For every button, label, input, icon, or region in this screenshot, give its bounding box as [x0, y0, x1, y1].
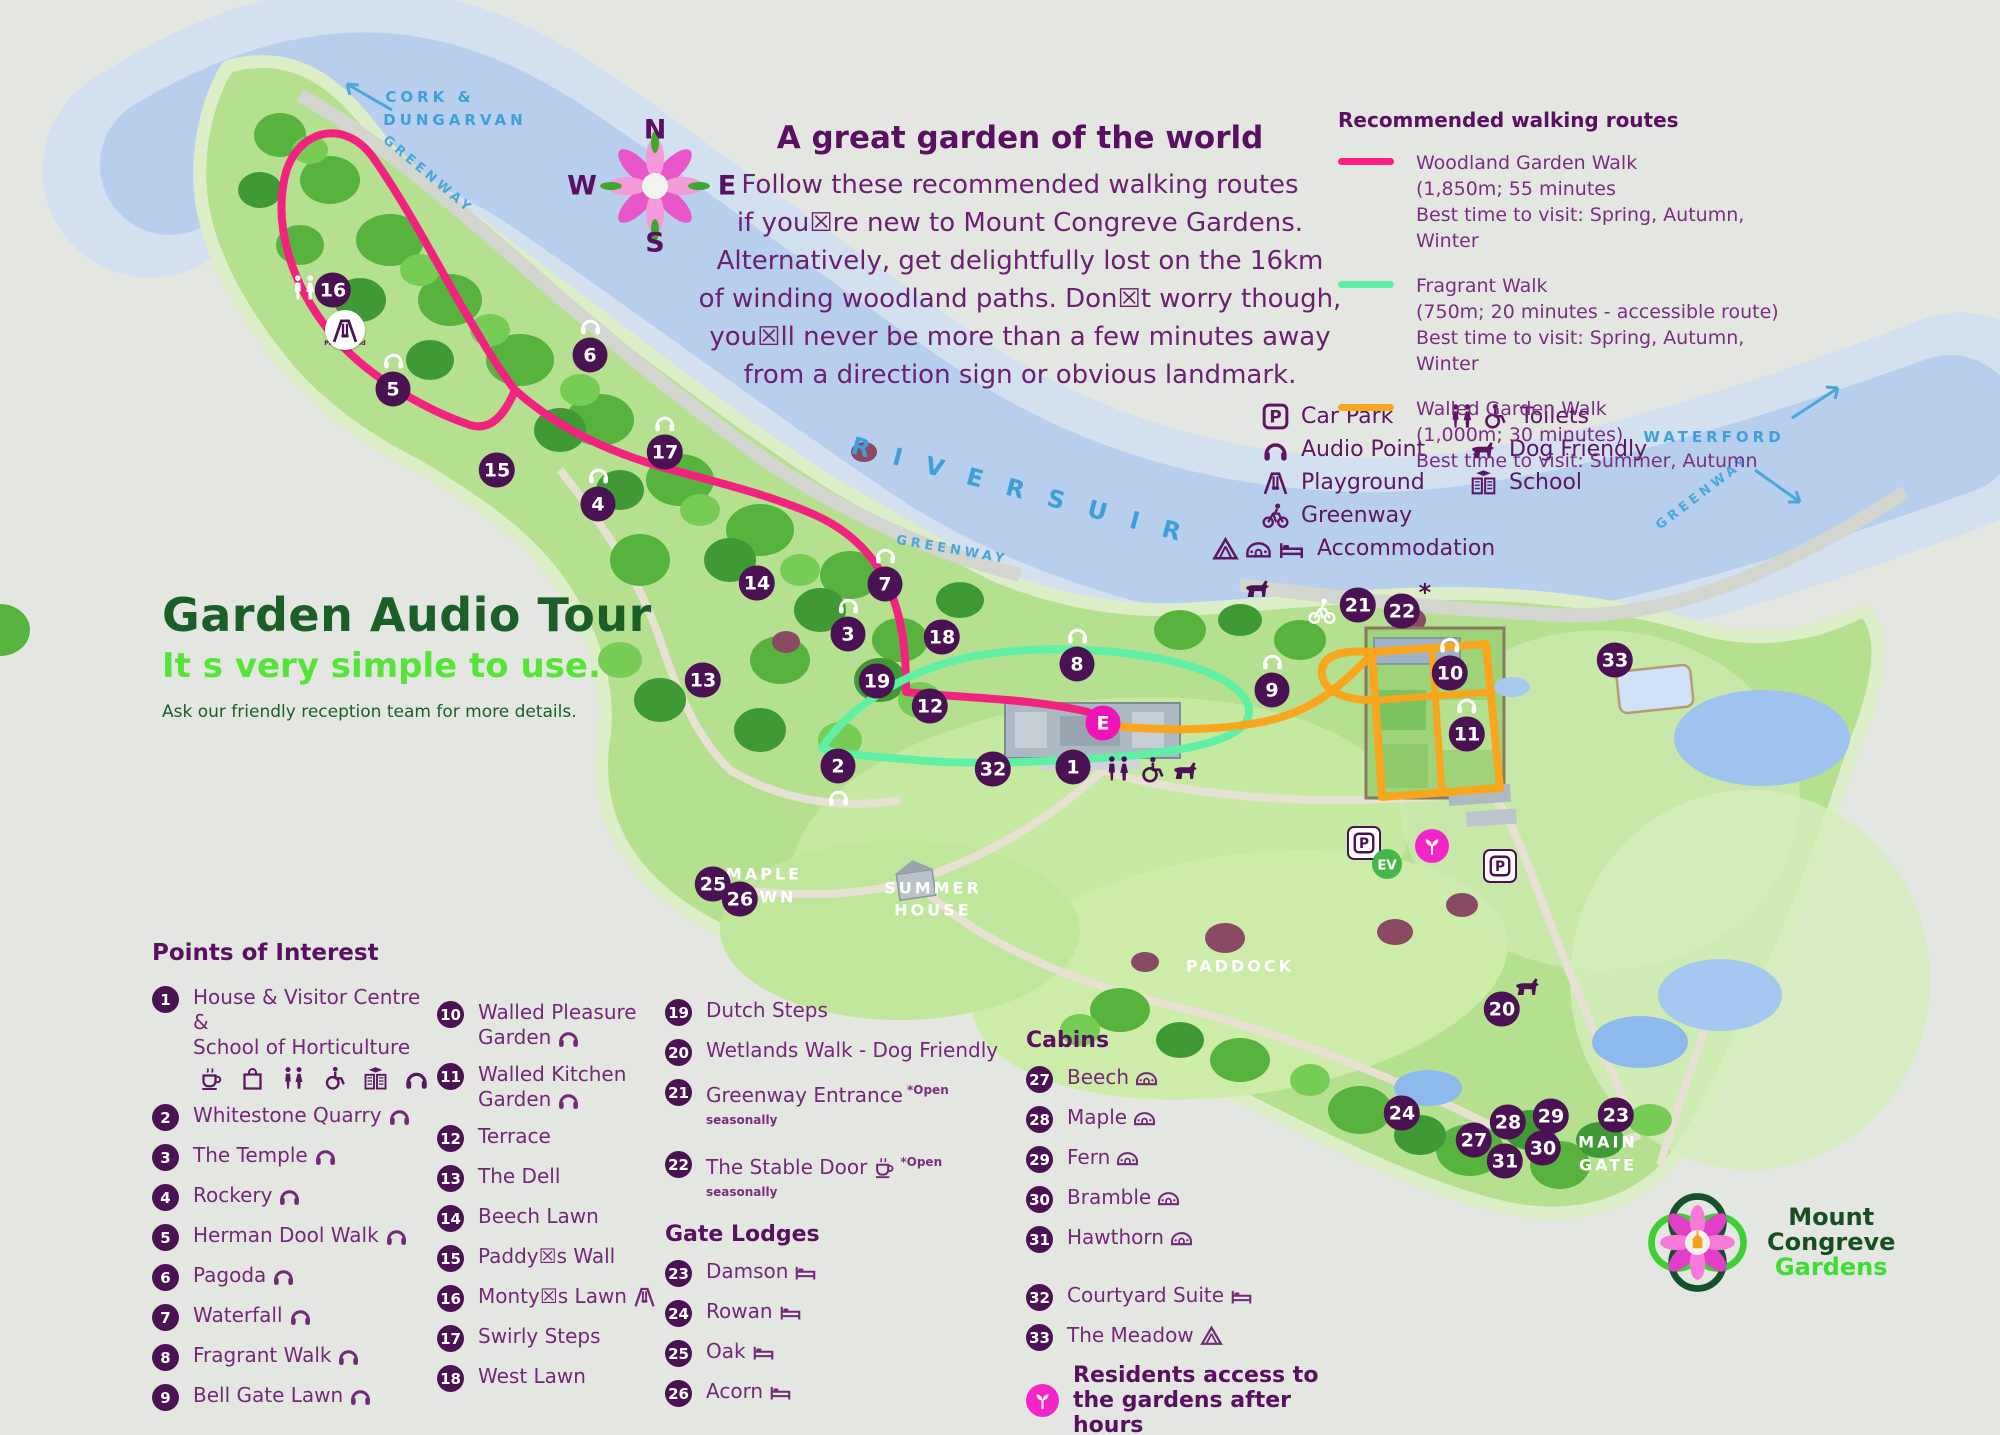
marker-number: 2 — [821, 749, 856, 784]
audio-point-icon — [349, 1384, 372, 1407]
marker-number: 12 — [912, 689, 948, 724]
pod-icon — [1135, 1066, 1158, 1089]
poi-item: 13 The Dell — [437, 1164, 662, 1192]
marker-number: 30 — [1525, 1131, 1561, 1166]
school-icon — [363, 1066, 388, 1091]
poi-number: 5 — [152, 1224, 179, 1251]
audio-point-icon — [1262, 436, 1289, 463]
audio-point-icon — [314, 1144, 337, 1167]
map-icon[interactable] — [1138, 756, 1166, 784]
poi-number: 12 — [437, 1125, 464, 1152]
map-marker[interactable]: 5 — [376, 348, 411, 407]
poi-number: 29 — [1026, 1146, 1053, 1173]
poi-number: 23 — [665, 1260, 692, 1287]
accommodation-item: 33 The Meadow — [1026, 1323, 1356, 1351]
gate-lodge-item: 24 Rowan — [665, 1299, 1015, 1327]
logo-line1: Mount — [1767, 1205, 1895, 1230]
seasonal-asterisk: * — [1419, 579, 1432, 607]
route-color-swatch — [1338, 281, 1394, 288]
route-item: Walled Garden Walk (1,000m; 30 minutes) … — [1338, 396, 1808, 474]
cabins-heading: Cabins — [1026, 1028, 1356, 1053]
map-label: CORK & — [385, 88, 474, 106]
route-detail: (1,850m; 55 minutes — [1416, 176, 1808, 202]
audio-point-icon — [1451, 693, 1483, 716]
map-icon[interactable] — [1104, 755, 1132, 783]
pod-icon — [1116, 1146, 1139, 1169]
wheelchair-icon — [322, 1066, 347, 1091]
map-marker[interactable]: 21 — [1340, 588, 1376, 623]
poi-number: 19 — [665, 999, 692, 1026]
marker-number: 28 — [1490, 1105, 1526, 1140]
cabins-block: Cabins 27 Beech 28 Maple 29 Fern — [1026, 1028, 1356, 1435]
route-name: Woodland Garden Walk — [1416, 150, 1808, 176]
audio-point-icon — [822, 785, 854, 808]
marker-number: 13 — [685, 663, 721, 698]
gate-lodge-item: 26 Acorn — [665, 1379, 1015, 1407]
marker-number: 33 — [1597, 643, 1633, 678]
poi-number: 3 — [152, 1144, 179, 1171]
poi-number: 27 — [1026, 1066, 1053, 1093]
poi-number: 15 — [437, 1245, 464, 1272]
audio-tour-note: Ask our friendly reception team for more… — [162, 702, 652, 722]
map-marker[interactable]: 33 — [1597, 643, 1633, 678]
audio-point-icon — [832, 593, 864, 616]
map-marker[interactable]: 1 — [1056, 750, 1091, 785]
map-label: MAIN — [1578, 1133, 1638, 1152]
coffee-icon — [873, 1156, 896, 1179]
pod-icon — [1245, 535, 1272, 562]
audio-point-icon — [1434, 632, 1466, 655]
audio-point-icon — [385, 1224, 408, 1247]
audio-point-icon — [557, 1088, 580, 1111]
audio-point-icon — [649, 411, 681, 434]
poi-item-1: 1 House & Visitor Centre & School of Hor… — [152, 985, 442, 1091]
bicycle-icon — [1262, 502, 1289, 529]
map-label: GATE — [1579, 1156, 1637, 1175]
audio-point-icon — [278, 1184, 301, 1207]
map-marker[interactable]: 19 — [859, 664, 895, 699]
marker-number: E — [1086, 706, 1121, 741]
audio-point-icon — [377, 348, 409, 371]
route-best-time: Best time to visit: Spring, Autumn, Wint… — [1416, 202, 1808, 254]
map-marker[interactable]: 23 — [1598, 1098, 1634, 1133]
poi-number: 7 — [152, 1304, 179, 1331]
intro-paragraph: Follow these recommended walking routes … — [690, 166, 1350, 394]
gate-lodge-item: 23 Damson — [665, 1259, 1015, 1287]
gate-lodge-item: 25 Oak — [665, 1339, 1015, 1367]
map-label: SUMMER — [884, 879, 982, 898]
marker-number: 32 — [975, 752, 1011, 787]
bed-icon — [1278, 535, 1305, 562]
map-icon[interactable] — [1483, 849, 1517, 883]
poi-number: 9 — [152, 1384, 179, 1411]
marker-number: 7 — [868, 567, 903, 602]
poi-item: 3 The Temple — [152, 1143, 442, 1171]
audio-point-icon — [337, 1344, 360, 1367]
map-label: HOUSE — [894, 901, 971, 920]
map-marker[interactable]: 16 — [315, 273, 351, 308]
audio-point-icon — [289, 1304, 312, 1327]
cabin-item: 27 Beech — [1026, 1065, 1356, 1093]
poi-number: 10 — [437, 1001, 464, 1028]
marker-number: 17 — [647, 435, 683, 470]
tent-icon — [1212, 535, 1239, 562]
logo-line3: Gardens — [1767, 1255, 1895, 1280]
map-marker[interactable]: 31 — [1487, 1144, 1523, 1179]
map-marker[interactable]: 6 — [573, 314, 608, 373]
map-marker[interactable]: 15 — [479, 453, 515, 488]
poi-item: 11 Walled Kitchen Garden — [437, 1062, 662, 1112]
poi-item: 9 Bell Gate Lawn — [152, 1383, 442, 1411]
poi1-facility-icons — [193, 1066, 442, 1091]
legend-accommodation: Accommodation — [1212, 535, 1495, 562]
route-item: Woodland Garden Walk (1,850m; 55 minutes… — [1338, 150, 1808, 254]
poi-item: 6 Pagoda — [152, 1263, 442, 1291]
map-marker[interactable]: 8 — [1060, 623, 1095, 682]
residents-access-icon — [1026, 1384, 1059, 1417]
map-marker[interactable]: 11 — [1449, 693, 1485, 752]
map-marker[interactable]: 2 — [821, 749, 856, 808]
map-icon[interactable] — [1308, 597, 1336, 625]
poi-number: 24 — [665, 1300, 692, 1327]
poi-item: 17 Swirly Steps — [437, 1324, 662, 1352]
map-marker[interactable]: E — [1086, 706, 1121, 741]
marker-number: 11 — [1449, 717, 1485, 752]
map-marker[interactable]: 7 — [868, 543, 903, 602]
map-marker[interactable]: 22 * — [1384, 594, 1420, 629]
poi-number: 18 — [437, 1365, 464, 1392]
audio-point-icon — [272, 1264, 295, 1287]
marker-number: 14 — [739, 566, 775, 601]
map-marker[interactable]: 29 — [1533, 1099, 1569, 1134]
poi-number: 13 — [437, 1165, 464, 1192]
marker-number: 10 — [1432, 656, 1468, 691]
poi-heading: Points of Interest — [152, 940, 379, 966]
map-icon[interactable] — [325, 310, 365, 350]
pod-icon — [1170, 1226, 1193, 1249]
marker-number: 8 — [1060, 647, 1095, 682]
poi-column-1: 1 House & Visitor Centre & School of Hor… — [152, 985, 442, 1423]
map-marker[interactable]: 18 — [924, 620, 960, 655]
marker-number: 1 — [1056, 750, 1091, 785]
audio-point-icon — [557, 1026, 580, 1049]
poi-number: 14 — [437, 1205, 464, 1232]
poi-number: 1 — [152, 986, 179, 1013]
audio-tour-subtitle: It s very simple to use. — [162, 646, 652, 686]
poi-item: 7 Waterfall — [152, 1303, 442, 1331]
gate-lodges-heading: Gate Lodges — [665, 1222, 1015, 1247]
marker-number: 5 — [376, 372, 411, 407]
pod-icon — [1157, 1186, 1180, 1209]
marker-number: 26 — [722, 882, 758, 917]
marker-number: 21 — [1340, 588, 1376, 623]
marker-number: 4 — [581, 487, 616, 522]
mount-congreve-logo: Mount Congreve Gardens — [1640, 1185, 1895, 1300]
marker-number: 22 — [1384, 594, 1420, 629]
map-marker[interactable]: 30 — [1525, 1131, 1561, 1166]
bed-icon — [752, 1340, 775, 1363]
cabin-item: 29 Fern — [1026, 1145, 1356, 1173]
cabin-item: 28 Maple — [1026, 1105, 1356, 1133]
poi-column-2: 10 Walled Pleasure Garden 11 Walled Kitc… — [437, 1000, 662, 1404]
map-marker[interactable]: 32 — [975, 752, 1011, 787]
route-detail: (750m; 20 minutes - accessible route) — [1416, 299, 1808, 325]
bed-icon — [769, 1380, 792, 1403]
poi-item: 16 Monty☒s Lawn — [437, 1284, 662, 1312]
poi-number: 11 — [437, 1063, 464, 1090]
map-marker[interactable]: 14 — [739, 566, 775, 601]
poi-number: 22 — [665, 1151, 692, 1178]
car-park-icon — [1262, 403, 1289, 430]
route-color-swatch — [1338, 158, 1394, 165]
bed-icon — [1230, 1284, 1253, 1307]
marker-number: 18 — [924, 620, 960, 655]
map-label: S — [645, 228, 664, 259]
tent-icon — [1200, 1324, 1223, 1347]
poi-number: 25 — [665, 1340, 692, 1367]
poi-item: 18 West Lawn — [437, 1364, 662, 1392]
logo-line2: Congreve — [1767, 1230, 1895, 1255]
poi-item: 14 Beech Lawn — [437, 1204, 662, 1232]
cabin-item: 30 Bramble — [1026, 1185, 1356, 1213]
route-name: Fragrant Walk — [1416, 273, 1808, 299]
map-marker[interactable]: 13 — [685, 663, 721, 698]
marker-number: 9 — [1255, 673, 1290, 708]
marker-number: 29 — [1533, 1099, 1569, 1134]
audio-tour-title: Garden Audio Tour — [162, 588, 652, 642]
audio-point-icon — [582, 463, 614, 486]
poi-item: 10 Walled Pleasure Garden — [437, 1000, 662, 1050]
poi-number: 20 — [665, 1039, 692, 1066]
map-label: DUNGARVAN — [383, 111, 526, 129]
intro-block: A great garden of the world Follow these… — [690, 120, 1350, 394]
logo-flower-icon — [1640, 1185, 1755, 1300]
poi-item: 2 Whitestone Quarry — [152, 1103, 442, 1131]
map-marker[interactable]: 20 — [1484, 992, 1520, 1027]
marker-number: 20 — [1484, 992, 1520, 1027]
coffee-icon — [199, 1066, 224, 1091]
residents-access-row: Residents access to the gardens after ho… — [1026, 1363, 1356, 1435]
intro-title: A great garden of the world — [690, 120, 1350, 156]
route-color-swatch — [1338, 404, 1394, 411]
audio-point-icon — [404, 1066, 429, 1091]
audio-point-icon — [1061, 623, 1093, 646]
poi-column-3: 19 Dutch Steps 20 Wetlands Walk - Dog Fr… — [665, 998, 1015, 1419]
marker-number: 19 — [859, 664, 895, 699]
map-marker[interactable]: 4 — [581, 463, 616, 522]
route-name: Walled Garden Walk — [1416, 396, 1758, 422]
marker-number: 16 — [315, 273, 351, 308]
poi-item: 20 Wetlands Walk - Dog Friendly — [665, 1038, 1015, 1066]
audio-tour-block: Garden Audio Tour It s very simple to us… — [162, 588, 652, 722]
map-marker[interactable]: 24 — [1384, 1096, 1420, 1131]
marker-number: 23 — [1598, 1098, 1634, 1133]
poi-item: 15 Paddy☒s Wall — [437, 1244, 662, 1272]
map-label: W — [567, 171, 597, 202]
marker-number: 15 — [479, 453, 515, 488]
playground-icon — [633, 1285, 656, 1308]
poi-number: 6 — [152, 1264, 179, 1291]
audio-point-icon — [869, 543, 901, 566]
marker-number: 24 — [1384, 1096, 1420, 1131]
poi-number: 32 — [1026, 1284, 1053, 1311]
map-icon[interactable] — [1372, 849, 1402, 879]
audio-point-icon — [574, 314, 606, 337]
map-marker[interactable]: 10 — [1432, 632, 1468, 691]
garden-map-page: P — [0, 0, 2000, 1435]
routes-heading: Recommended walking routes — [1338, 108, 1808, 132]
bed-icon — [794, 1260, 817, 1283]
toilets-icon — [281, 1066, 306, 1091]
marker-number: 6 — [573, 338, 608, 373]
map-marker[interactable]: 9 — [1255, 649, 1290, 708]
marker-number: 31 — [1487, 1144, 1523, 1179]
accommodation-item: 32 Courtyard Suite — [1026, 1283, 1356, 1311]
map-marker[interactable]: 12 — [912, 689, 948, 724]
map-icon[interactable] — [1244, 574, 1272, 602]
route-detail: (1,000m; 30 minutes) — [1416, 422, 1758, 448]
poi-number: 33 — [1026, 1324, 1053, 1351]
map-icon[interactable] — [1415, 829, 1449, 863]
poi-number: 4 — [152, 1184, 179, 1211]
bed-icon — [779, 1300, 802, 1323]
shop-bag-icon — [240, 1066, 265, 1091]
map-label: PADDOCK — [1186, 957, 1294, 976]
map-marker[interactable]: 26 — [722, 882, 758, 917]
audio-point-icon — [1256, 649, 1288, 672]
walking-routes-legend: Recommended walking routes Woodland Gard… — [1338, 108, 1808, 493]
poi-item: 5 Herman Dool Walk — [152, 1223, 442, 1251]
poi-number: 17 — [437, 1325, 464, 1352]
map-label: N — [644, 115, 667, 146]
poi-number: 8 — [152, 1344, 179, 1371]
poi-item: 12 Terrace — [437, 1124, 662, 1152]
map-icon[interactable] — [1172, 756, 1200, 784]
poi-item: 8 Fragrant Walk — [152, 1343, 442, 1371]
poi-item: 19 Dutch Steps — [665, 998, 1015, 1026]
audio-point-icon — [388, 1104, 411, 1127]
map-marker[interactable]: 17 — [647, 411, 683, 470]
poi-number: 16 — [437, 1285, 464, 1312]
poi-number: 26 — [665, 1380, 692, 1407]
poi-number: 2 — [152, 1104, 179, 1131]
marker-number: 3 — [831, 617, 866, 652]
poi-number: 28 — [1026, 1106, 1053, 1133]
poi-number: 31 — [1026, 1226, 1053, 1253]
playground-icon — [1262, 469, 1289, 496]
route-best-time: Best time to visit: Spring, Autumn, Wint… — [1416, 325, 1808, 377]
map-marker[interactable]: 3 — [831, 593, 866, 652]
map-marker[interactable]: 28 — [1490, 1105, 1526, 1140]
poi-item: 21 Greenway Entrance*Open seasonally — [665, 1078, 1015, 1138]
route-best-time: Best time to visit: Summer, Autumn — [1416, 448, 1758, 474]
cabin-item: 31 Hawthorn — [1026, 1225, 1356, 1253]
poi-item: 22 The Stable Door*Open seasonally — [665, 1150, 1015, 1210]
poi-number: 30 — [1026, 1186, 1053, 1213]
legend-greenway: Greenway — [1262, 502, 1412, 529]
route-item: Fragrant Walk (750m; 20 minutes - access… — [1338, 273, 1808, 377]
poi-item: 4 Rockery — [152, 1183, 442, 1211]
poi-number: 21 — [665, 1079, 692, 1106]
pod-icon — [1133, 1106, 1156, 1129]
